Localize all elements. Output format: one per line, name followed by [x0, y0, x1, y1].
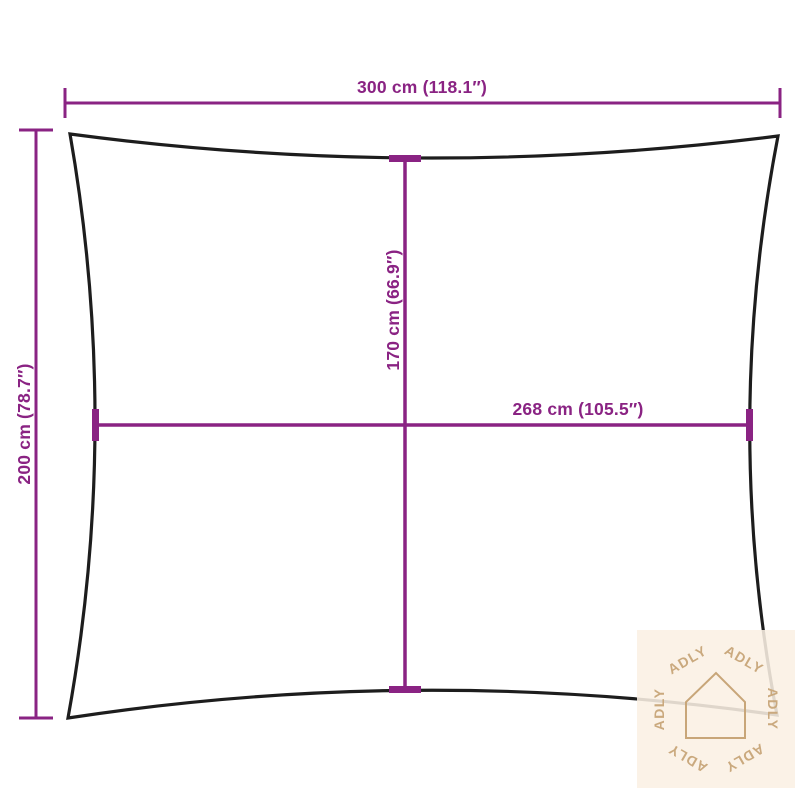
- tick-left: [92, 409, 99, 441]
- tick-right: [746, 409, 753, 441]
- dimension-label-center-width: 268 cm (105.5″): [512, 399, 643, 419]
- watermark-text: ADLY: [765, 688, 781, 731]
- tick-top: [389, 155, 421, 162]
- watermark: ADLY ADLY ADLY ADLY ADLY ADLY: [637, 630, 795, 788]
- dimension-label-left-height: 200 cm (78.7″): [14, 363, 34, 484]
- dimension-label-center-height: 170 cm (66.9″): [383, 249, 403, 370]
- dimension-label-top-width: 300 cm (118.1″): [357, 77, 487, 97]
- dimension-center-width: [92, 409, 753, 441]
- tick-bottom: [389, 686, 421, 693]
- product-dimension-image: 300 cm (118.1″) 200 cm (78.7″) 170 cm (6…: [0, 0, 800, 800]
- dimension-diagram-svg: 300 cm (118.1″) 200 cm (78.7″) 170 cm (6…: [0, 0, 800, 800]
- watermark-text: ADLY: [651, 688, 667, 731]
